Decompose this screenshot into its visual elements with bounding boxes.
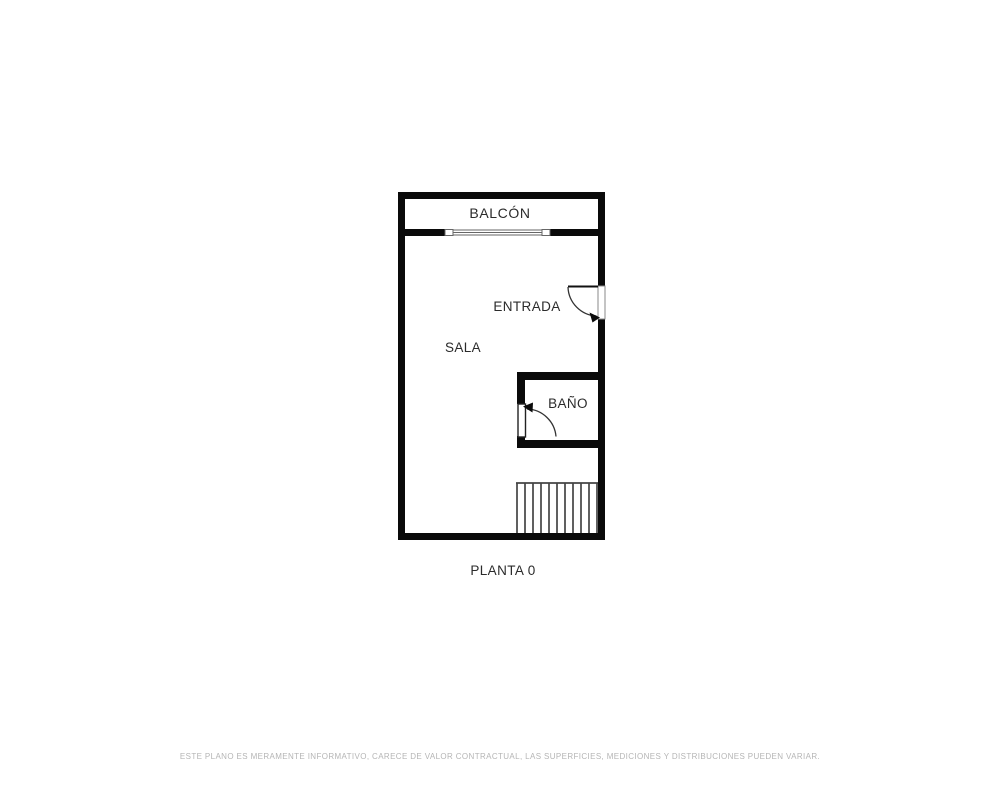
balcony-wall bbox=[398, 229, 605, 236]
bathroom-wall-left-upper bbox=[517, 372, 525, 404]
bathroom-door-arc bbox=[527, 409, 556, 437]
floor-label: PLANTA 0 bbox=[470, 563, 535, 578]
wall-left bbox=[398, 192, 405, 540]
bathroom-wall-bottom bbox=[517, 440, 605, 448]
wall-right-lower bbox=[598, 319, 605, 540]
disclaimer-text: ESTE PLANO ES MERAMENTE INFORMATIVO, CAR… bbox=[0, 752, 1000, 761]
bathroom-door-leaf bbox=[518, 404, 526, 437]
balcony-label: BALCÓN bbox=[469, 205, 530, 221]
stairs-icon bbox=[516, 483, 598, 533]
balcony-wall-right-segment bbox=[550, 229, 605, 236]
entrance-door-icon bbox=[568, 286, 605, 323]
floor-plan-drawing: BALCÓN ENTRADA SALA BAÑO PLANTA 0 bbox=[0, 0, 1000, 800]
bathroom-label: BAÑO bbox=[548, 396, 588, 411]
balcony-wall-left-segment bbox=[398, 229, 445, 236]
bathroom-wall-top bbox=[517, 372, 605, 380]
floor-plan-page: BALCÓN ENTRADA SALA BAÑO PLANTA 0 ESTE P… bbox=[0, 0, 1000, 800]
entrance-label: ENTRADA bbox=[493, 299, 560, 314]
living-room-label: SALA bbox=[445, 340, 481, 355]
wall-bottom bbox=[398, 533, 605, 540]
entrance-door-arc bbox=[568, 287, 597, 316]
outer-walls bbox=[398, 192, 605, 540]
wall-top bbox=[398, 192, 605, 199]
window-icon bbox=[445, 230, 550, 236]
entrance-door-frame bbox=[598, 286, 605, 319]
wall-right-upper bbox=[598, 192, 605, 286]
